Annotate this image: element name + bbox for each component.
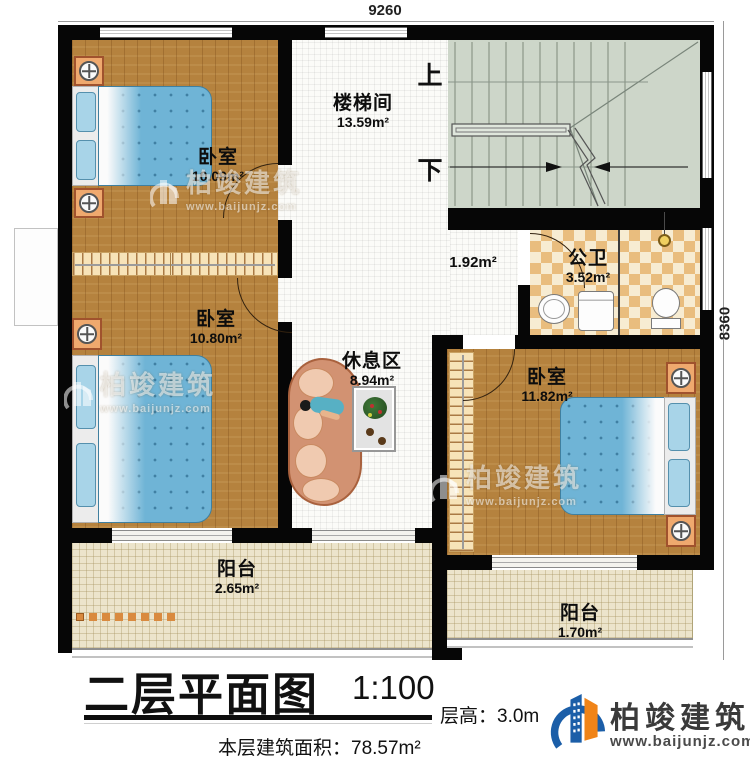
wardrobe-left-divider	[170, 253, 171, 275]
room-area: 1.70m²	[530, 625, 630, 640]
room-label-bedroom-top-left: 卧室 10.09m²	[168, 148, 268, 184]
room-label-hallway: 1.92m²	[440, 255, 506, 272]
toilet-bowl	[652, 288, 680, 318]
room-area: 11.82m²	[497, 389, 597, 404]
room-label-balcony-right: 阳台 1.70m²	[530, 604, 630, 640]
room-area: 3.52m²	[538, 270, 638, 285]
lamp-cord	[664, 212, 665, 234]
window-top-stairwell	[325, 27, 407, 38]
sink	[538, 294, 570, 324]
room-area: 10.80m²	[166, 331, 266, 346]
room-name: 卧室	[497, 368, 597, 389]
washer	[578, 291, 614, 331]
room-area: 1.92m²	[440, 255, 506, 272]
room-label-stairwell: 楼梯间 13.59m²	[313, 94, 413, 130]
lamp-icon	[79, 193, 99, 213]
wall-bathroom-left	[518, 285, 530, 335]
room-label-balcony-left: 阳台 2.65m²	[187, 560, 287, 596]
bed-mid-left	[72, 355, 212, 523]
room-name: 阳台	[187, 560, 287, 581]
bed-pillow	[76, 443, 96, 507]
staircase	[448, 40, 700, 208]
plan-scale: 1:100	[352, 669, 435, 707]
room-label-bathroom: 公卫 3.52m²	[538, 249, 638, 285]
sofa-cushion	[295, 444, 327, 478]
room-name: 阳台	[530, 604, 630, 625]
sofa-cushion	[302, 478, 340, 502]
room-name: 公卫	[538, 249, 638, 270]
room-name: 休息区	[322, 352, 422, 373]
wall-corridor-b	[278, 220, 292, 278]
nightstand-tl-bottom	[74, 188, 104, 218]
window-right-bathroom	[702, 228, 712, 310]
plan-title: 二层平面图	[84, 658, 319, 723]
wall-left	[58, 25, 72, 653]
title-block: 二层平面图 1:100 层高：3.0m 本层建筑面积：78.57m² 柏竣建筑 …	[0, 655, 750, 769]
nightstand-ml	[72, 318, 102, 350]
brand-name: 柏竣建筑	[610, 693, 750, 737]
floor-plan-canvas: 9260 8360	[0, 0, 750, 769]
plant-icon	[363, 397, 387, 419]
bed-sheet	[99, 87, 141, 185]
lamp-icon	[79, 61, 99, 81]
bed-pillow	[76, 140, 96, 180]
wall-corridor-a	[278, 40, 292, 165]
wall-stairs-bottom	[448, 208, 714, 230]
lamp-icon	[671, 368, 691, 388]
bed-pillow	[668, 459, 690, 507]
room-label-bedroom-mid-left: 卧室 10.80m²	[166, 310, 266, 346]
bed-pillow	[668, 403, 690, 451]
sink-basin	[543, 299, 565, 319]
room-name: 卧室	[168, 148, 268, 169]
bed-sheet	[99, 356, 145, 522]
window-top-bedroom	[100, 27, 232, 38]
hallway-floor	[450, 230, 518, 335]
window-right-stairs	[702, 72, 712, 178]
wall-bottom-left-b	[232, 528, 312, 543]
stairs-up-label: 上	[410, 56, 450, 92]
wall-bedroom-right-bottom-a	[447, 555, 492, 570]
room-area: 8.94m²	[322, 373, 422, 388]
room-label-lounge: 休息区 8.94m²	[322, 352, 422, 388]
floor-area-text: 本层建筑面积：78.57m²	[218, 733, 421, 760]
room-area: 10.09m²	[168, 169, 268, 184]
bed-right	[560, 397, 696, 515]
sliding-door-bedroom-br-balcony	[492, 557, 637, 568]
nightstand-br-top	[666, 362, 696, 394]
planter-row-1	[76, 613, 84, 621]
table-item	[366, 428, 374, 436]
brand-logo-icon	[548, 687, 606, 759]
room-label-bedroom-right: 卧室 11.82m²	[497, 368, 597, 404]
sliding-door-bedroom-ml-balcony	[112, 530, 232, 541]
wall-bedroom-right-bottom-b	[637, 555, 714, 570]
floor-height-text: 层高：3.0m	[440, 701, 539, 728]
brand-website: www.baijunjz.com	[610, 733, 750, 750]
room-name: 楼梯间	[313, 94, 413, 115]
sliding-door-lounge-balcony	[312, 530, 415, 541]
bed-sheet	[622, 398, 664, 514]
room-area: 2.65m²	[187, 581, 287, 596]
room-area: 13.59m²	[313, 115, 413, 130]
table-item	[378, 437, 386, 445]
nightstand-tl-top	[74, 56, 104, 86]
dimension-line-top	[58, 21, 714, 22]
wall-bottom-left-c	[415, 528, 432, 543]
nightstand-br-bottom	[666, 515, 696, 547]
title-underline	[84, 715, 432, 720]
stairs-down-label: 下	[410, 151, 450, 187]
toilet-tank	[651, 318, 681, 329]
toilet	[650, 288, 682, 332]
room-name: 卧室	[166, 310, 266, 331]
coffee-table	[352, 386, 396, 452]
lamp-icon	[77, 324, 97, 344]
wall-bath-bedroom-b	[515, 335, 714, 349]
hanging-lamp-icon	[658, 234, 671, 247]
bed-pillow	[76, 92, 96, 132]
dimension-right-value: 8360	[717, 296, 734, 352]
bay-window-left	[14, 228, 58, 326]
lamp-icon	[671, 521, 691, 541]
wardrobe-left	[72, 252, 278, 276]
dimension-top-value: 9260	[340, 2, 430, 19]
title-underline-thin	[84, 723, 432, 724]
wall-center-vertical	[432, 335, 447, 660]
wall-bottom-left-a	[58, 528, 112, 543]
bed-pillow	[76, 365, 96, 429]
